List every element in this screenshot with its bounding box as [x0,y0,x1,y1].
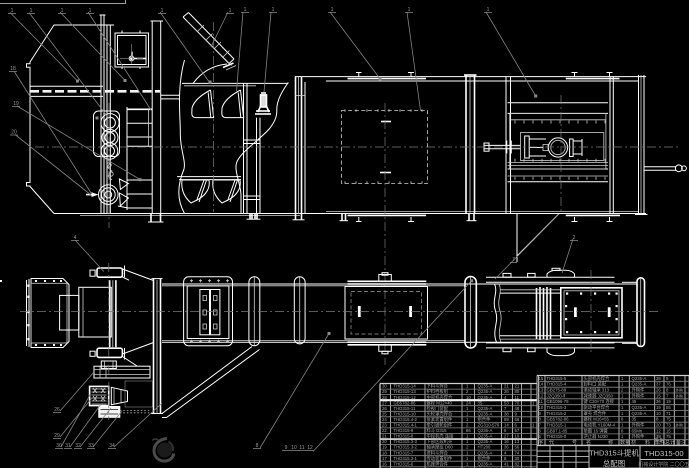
svg-text:21: 21 [504,384,509,389]
svg-text:THD315-9: THD315-9 [394,428,414,433]
svg-text:29: 29 [382,389,387,394]
svg-text:19: 19 [656,405,661,410]
svg-text:24: 24 [382,417,387,422]
svg-text:38: 38 [504,411,509,416]
svg-text:THD315-3: THD315-3 [547,405,567,410]
svg-text:24: 24 [466,400,471,405]
svg-text:GB5782-86: GB5782-86 [394,400,417,405]
svg-text:THD315.4-2: THD315.4-2 [394,417,418,422]
svg-text:THD315.3-3: THD315.3-3 [394,439,418,444]
svg-text:机械设计学院 二〇〇五: 机械设计学院 二〇〇五 [638,461,689,468]
svg-text:THD315-11: THD315-11 [394,406,417,411]
svg-text:15: 15 [539,376,544,381]
svg-text:18: 18 [382,450,387,455]
svg-text:总配图: 总配图 [603,459,625,468]
svg-text:Q235-A: Q235-A [478,439,493,444]
svg-text:53: 53 [504,400,509,405]
svg-text:质 量: 质 量 [655,437,663,442]
svg-text:12: 12 [656,428,661,433]
svg-text:THD315-6: THD315-6 [394,461,414,466]
svg-text:55: 55 [666,405,671,410]
svg-text:27: 27 [504,434,509,439]
svg-text:JZQ350-Ⅱ: JZQ350-Ⅱ [547,393,566,398]
svg-text:外购: 外购 [676,393,684,398]
svg-text:10: 10 [656,411,661,416]
svg-text:37: 37 [656,382,661,387]
svg-text:ZG310-570: ZG310-570 [478,423,500,428]
svg-text:26: 26 [382,406,387,411]
svg-text:Q235-A: Q235-A [632,411,647,416]
svg-text:GB97.1-85: GB97.1-85 [547,428,568,433]
svg-text:Q235-A: Q235-A [632,382,647,387]
svg-text:27: 27 [382,400,387,405]
svg-text:75: 75 [666,434,671,439]
svg-text:20: 20 [382,439,387,444]
svg-text:THD315斗提机: THD315斗提机 [589,449,639,458]
svg-text:86: 86 [466,428,471,433]
svg-text:28: 28 [382,395,387,400]
svg-text:11: 11 [539,399,544,404]
svg-text:30: 30 [515,456,520,461]
svg-text:38: 38 [656,376,661,381]
svg-text:10: 10 [515,434,520,439]
svg-text:74: 74 [515,450,520,455]
svg-text:THD315-0: THD315-0 [547,434,567,439]
svg-text:70: 70 [515,400,520,405]
svg-text:10: 10 [466,395,471,400]
svg-text:36: 36 [656,399,661,404]
svg-text:21: 21 [382,434,387,439]
svg-text:35: 35 [478,400,483,405]
svg-text:外购件: 外购件 [632,433,646,440]
svg-text:13: 13 [515,439,520,444]
svg-text:Q235-A: Q235-A [478,434,493,439]
svg-text:外购: 外购 [676,423,684,428]
svg-text:35: 35 [632,417,637,422]
svg-text:Q235-A: Q235-A [478,389,493,394]
svg-text:48: 48 [515,406,520,411]
svg-text:85: 85 [515,389,520,394]
svg-text:THD315.3-1: THD315.3-1 [394,456,418,461]
svg-text:THD315.4-1: THD315.4-1 [394,423,418,428]
svg-text:THD315-8: THD315-8 [394,434,414,439]
svg-text:14: 14 [539,382,544,387]
svg-text:19: 19 [382,445,387,450]
svg-text:56: 56 [515,445,520,450]
svg-text:Q235-A: Q235-A [632,376,647,381]
svg-text:GB1096-79: GB1096-79 [547,399,570,404]
svg-text:外购: 外购 [676,388,684,393]
svg-text:Q235-A: Q235-A [478,384,493,389]
svg-text:65Mn: 65Mn [632,428,643,433]
svg-text:19: 19 [666,399,671,404]
svg-text:14: 14 [504,423,509,428]
svg-text:THD315-5: THD315-5 [547,376,567,381]
svg-text:12: 12 [539,393,544,398]
svg-text:71: 71 [666,411,671,416]
svg-text:15: 15 [666,428,671,433]
svg-text:10: 10 [539,405,544,410]
svg-text:THD315-2: THD315-2 [547,411,567,416]
svg-text:30: 30 [382,384,387,389]
svg-text:THD315.3-2: THD315.3-2 [394,445,418,450]
svg-text:THD315-7: THD315-7 [394,450,414,455]
svg-text:66: 66 [515,417,520,422]
svg-text:15: 15 [656,393,661,398]
svg-text:Q235-A: Q235-A [632,405,647,410]
svg-text:82: 82 [515,461,520,466]
svg-text:THD315-10: THD315-10 [394,411,417,416]
svg-text:73: 73 [666,423,671,428]
svg-text:Q235-A: Q235-A [478,411,493,416]
svg-text:THD315-13: THD315-13 [394,389,417,394]
svg-text:THD315-14: THD315-14 [394,384,417,389]
svg-text:THD315-4: THD315-4 [547,382,567,387]
svg-text:76: 76 [666,382,671,387]
svg-text:26: 26 [656,388,661,393]
svg-text:20: 20 [656,423,661,428]
svg-text:13: 13 [539,388,544,393]
svg-text:16: 16 [382,461,387,466]
svg-text:THD315-00: THD315-00 [644,449,683,458]
svg-text:45: 45 [632,399,637,404]
svg-text:59: 59 [504,417,509,422]
svg-text:GB275-88: GB275-88 [547,388,567,393]
svg-text:GB5782-86: GB5782-86 [547,417,570,422]
svg-text:22: 22 [382,428,387,433]
svg-text:36: 36 [504,445,509,450]
svg-text:75: 75 [666,417,671,422]
svg-text:THD315-12: THD315-12 [394,395,417,400]
svg-text:17: 17 [382,456,387,461]
svg-text:26: 26 [504,389,509,394]
svg-text:机座焊合件: 机座焊合件 [427,460,449,467]
svg-text:21: 21 [515,384,520,389]
svg-text:HT200: HT200 [478,445,492,450]
svg-text:Q235-A: Q235-A [478,428,493,433]
svg-text:16: 16 [504,439,509,444]
svg-text:Q235-A: Q235-A [478,450,493,455]
svg-text:23: 23 [382,423,387,428]
svg-text:Q235-A: Q235-A [478,406,493,411]
svg-text:11: 11 [515,395,520,400]
svg-text:逆止器 NJ30: 逆止器 NJ30 [584,433,609,440]
svg-text:25: 25 [382,411,387,416]
svg-text:Q235-A: Q235-A [478,395,493,400]
svg-text:57: 57 [515,428,520,433]
svg-text:THD315-1: THD315-1 [547,423,567,428]
svg-text:Q235-A: Q235-A [478,461,493,466]
svg-text:41: 41 [504,461,509,466]
